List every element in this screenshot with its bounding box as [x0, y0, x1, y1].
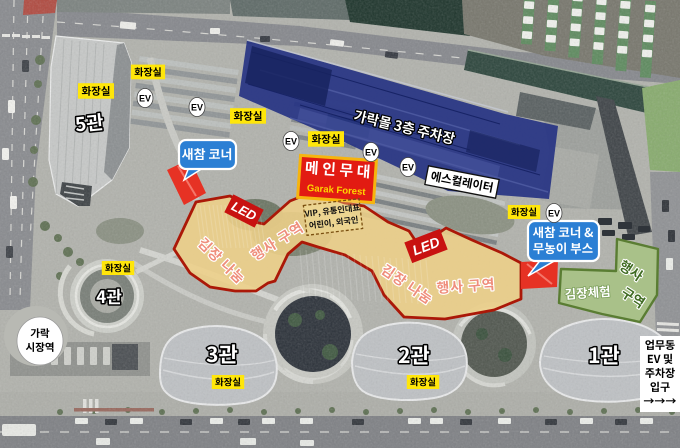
svg-text:EV: EV — [548, 209, 560, 219]
svg-text:EV: EV — [191, 103, 203, 113]
svg-text:EV: EV — [139, 94, 151, 104]
svg-text:EV: EV — [365, 148, 377, 158]
svg-text:EV: EV — [285, 137, 297, 147]
svg-text:EV: EV — [402, 163, 414, 173]
